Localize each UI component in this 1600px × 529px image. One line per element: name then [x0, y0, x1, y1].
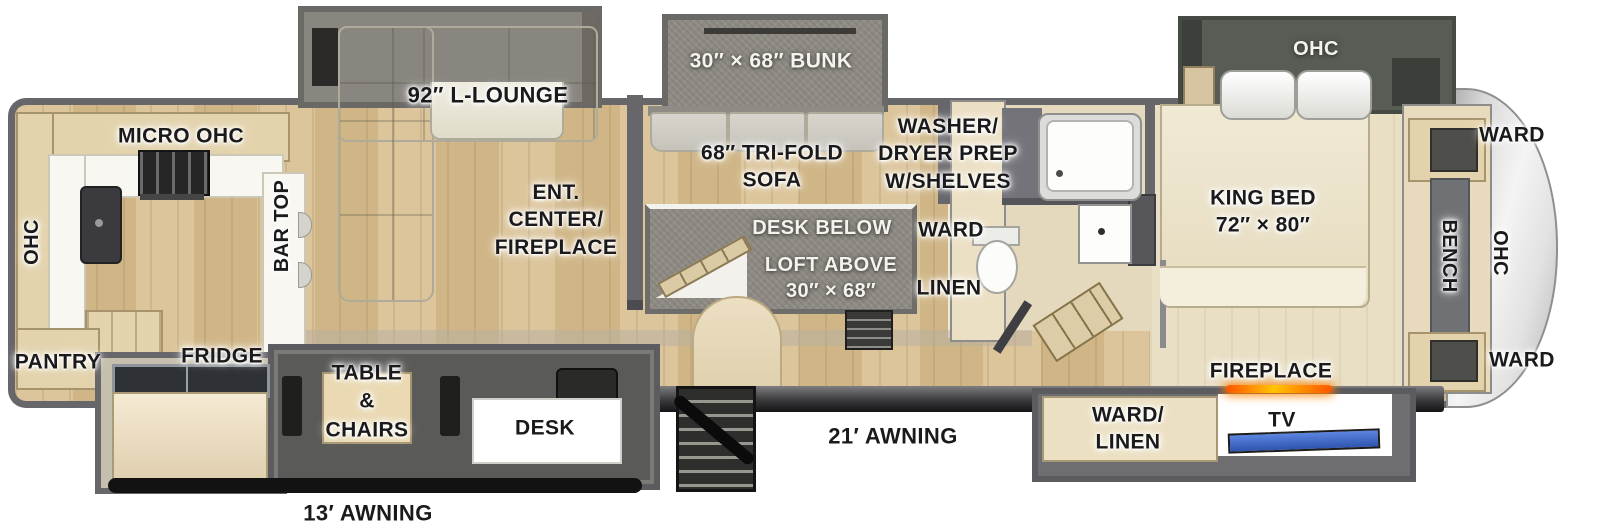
- fireplace-glow: [1226, 385, 1332, 393]
- awning-13-label: 13′ AWNING: [303, 500, 432, 529]
- stove-knobs: [140, 194, 204, 200]
- awning-13-bar: [108, 478, 642, 493]
- loft-above-label: LOFT ABOVE 30″ × 68″: [765, 252, 897, 304]
- bunk-window: [704, 28, 856, 34]
- bed-pillow-left: [1220, 70, 1296, 120]
- bed-slide-window-right: [1392, 58, 1440, 106]
- bedroom-ohc-label: OHC: [1293, 36, 1339, 62]
- shower-drain: [1056, 170, 1063, 177]
- front-ohc-label: OHC: [1487, 230, 1513, 276]
- sink-faucet: [95, 219, 103, 227]
- front-ward-bottom-label: WARD: [1489, 346, 1555, 373]
- micro-ohc-label: MICRO OHC: [118, 122, 244, 149]
- ent-center-label: ENT. CENTER/ FIREPLACE: [495, 179, 618, 261]
- bath-cabinet: [1128, 194, 1156, 266]
- bench-label: BENCH: [1436, 219, 1462, 292]
- dinette-chair-right: [440, 376, 460, 436]
- linen-label: LINEN: [917, 274, 982, 301]
- front-ward-window-top: [1430, 128, 1478, 172]
- lounge-label: 92″ L-LOUNGE: [408, 82, 569, 111]
- rv-floorplan: 30″ × 68″ BUNK 92″ L-LOUNGE OHC MICRO OH…: [0, 0, 1600, 529]
- ward-mid-label: WARD: [918, 216, 984, 243]
- king-bed-label: KING BED 72″ × 80″: [1210, 185, 1316, 240]
- front-ward-window-bottom: [1430, 340, 1478, 382]
- shower-pan: [1046, 120, 1134, 192]
- bar-top-label: BAR TOP: [269, 180, 295, 272]
- toilet: [976, 240, 1018, 294]
- dinette-chair-left: [282, 376, 302, 436]
- rear-ohc-label: OHC: [19, 219, 45, 265]
- fridge-label: FRIDGE: [181, 342, 263, 369]
- tri-fold-label: 68″ TRI-FOLD SOFA: [701, 140, 843, 195]
- entry-landing: [692, 296, 782, 390]
- sofa-left-arm: [338, 26, 434, 302]
- bath-faucet: [1098, 228, 1105, 235]
- king-bed-foot-blanket: [1160, 266, 1366, 306]
- pantry-label: PANTRY: [15, 348, 101, 375]
- fireplace-label: FIREPLACE: [1210, 357, 1333, 384]
- awning-21-label: 21′ AWNING: [828, 423, 957, 452]
- ward-linen-label: WARD/ LINEN: [1092, 402, 1164, 457]
- front-ward-top-label: WARD: [1479, 121, 1545, 148]
- table-chairs-label: TABLE & CHAIRS: [326, 359, 409, 444]
- wall-living-bunkroom: [627, 95, 643, 307]
- bedroom-wall: [1145, 100, 1155, 200]
- bunk-label: 30″ × 68″ BUNK: [690, 47, 853, 74]
- lounge-slide-window: [312, 28, 338, 86]
- desk-below-label: DESK BELOW: [752, 215, 892, 241]
- bed-pillow-right: [1296, 70, 1372, 120]
- bath-vanity-sink: [1078, 204, 1132, 264]
- washer-dryer-label: WASHER/ DRYER PREP W/SHELVES: [878, 113, 1018, 195]
- wall-cap: [627, 300, 643, 310]
- tv-label: TV: [1268, 406, 1296, 433]
- desk-label: DESK: [515, 414, 575, 441]
- loft-stairs: [845, 310, 893, 350]
- stove-cooktop: [138, 150, 210, 196]
- fridge-body: [112, 392, 268, 480]
